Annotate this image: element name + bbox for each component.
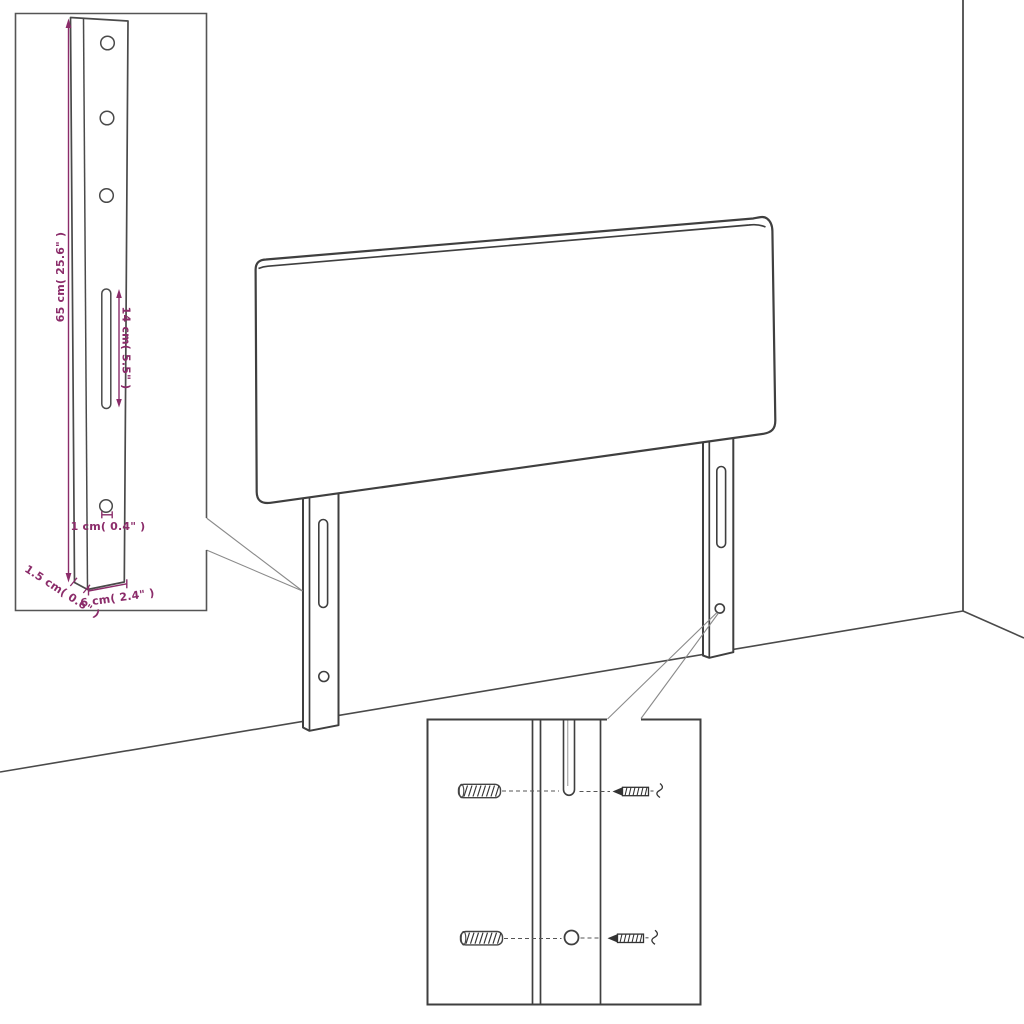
bracket-slot [102,289,111,409]
wall-plug-icon [459,784,501,797]
headboard-panel [256,217,776,503]
headboard-left-leg [303,490,339,731]
right-leg-slot [717,467,726,548]
mounting-hole [565,931,579,945]
left-leg-slot [319,520,328,608]
bracket-hole [101,36,115,50]
bracket-hole [100,111,114,125]
headboard-right-leg [703,433,733,658]
bracket-detail-inset: 65 cm( 25.6" ) 14 cm( 5.5" ) 1 cm( 0.4" … [16,14,207,621]
right-leg-hole [715,604,724,613]
floor-line-right [963,611,1024,638]
left-leg-hole [319,672,329,682]
bracket-hole [100,189,114,203]
dim-slot-label: 14 cm( 5.5" ) [120,307,133,390]
assembly-diagram: 65 cm( 25.6" ) 14 cm( 5.5" ) 1 cm( 0.4" … [0,0,1024,1024]
mounting-detail-inset [428,720,701,1005]
dim-hole-label: 1 cm( 0.4" ) [71,520,146,533]
callout-lines-left [207,518,303,591]
dim-height-label: 65 cm( 25.6" ) [54,232,67,323]
wall-plug-icon [461,932,503,945]
callout-lines-right [608,613,719,720]
bracket-small-hole [100,500,113,513]
